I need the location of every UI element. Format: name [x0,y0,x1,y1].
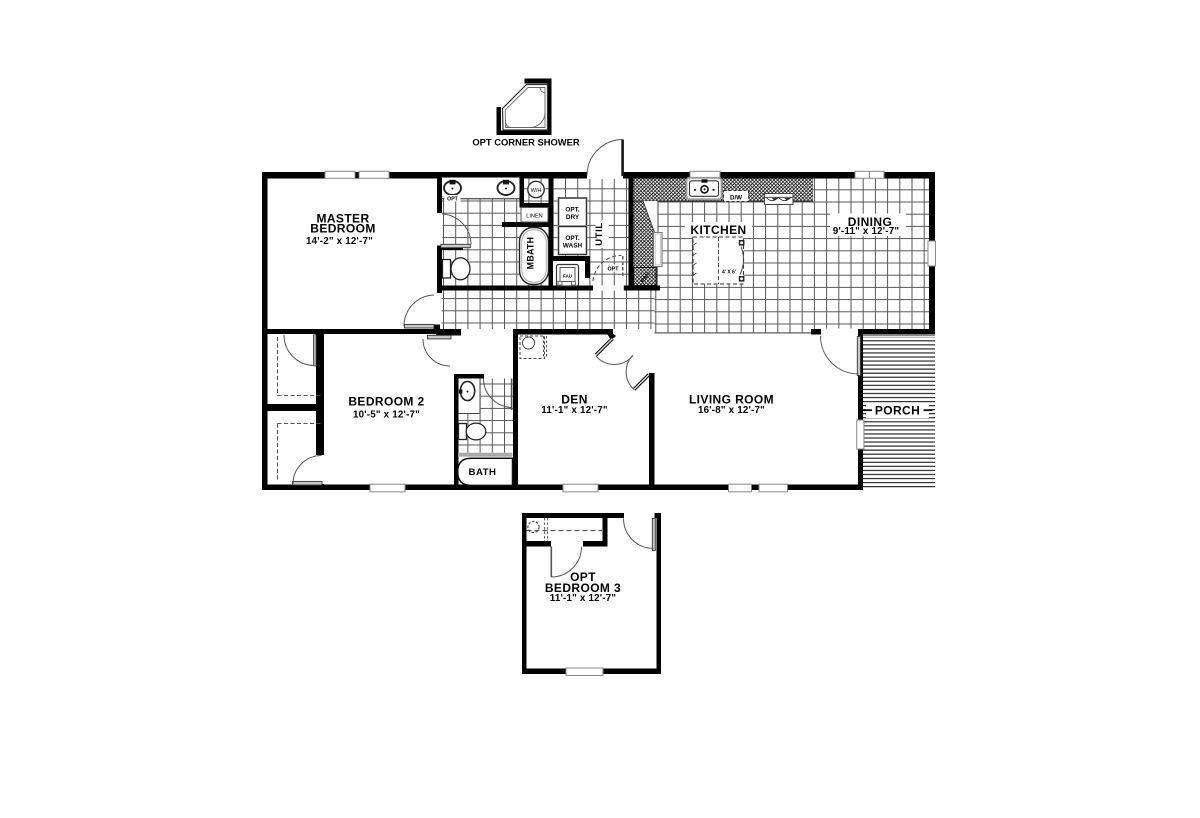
svg-text:WASH: WASH [563,243,583,250]
svg-text:BATH: BATH [469,467,497,478]
svg-text:KITCHEN: KITCHEN [690,223,746,237]
svg-text:PORCH: PORCH [875,404,920,418]
svg-text:W/H: W/H [531,188,542,194]
svg-text:OPT: OPT [607,267,619,273]
svg-text:9'-11" x 12'-7": 9'-11" x 12'-7" [833,226,900,237]
svg-text:BEDROOM: BEDROOM [310,222,375,236]
svg-text:14'-2" x 12'-7": 14'-2" x 12'-7" [306,236,373,247]
svg-text:OPT.: OPT. [565,235,579,242]
svg-text:UTIL: UTIL [594,222,605,246]
svg-text:DRY: DRY [566,214,580,221]
svg-text:OPT CORNER SHOWER: OPT CORNER SHOWER [472,136,580,147]
svg-text:OPT: OPT [447,197,458,203]
svg-text:BEDROOM 2: BEDROOM 2 [348,395,424,409]
svg-text:10'-5" x 12'-7": 10'-5" x 12'-7" [353,409,420,420]
svg-text:4' X 6': 4' X 6' [722,270,736,276]
svg-text:11'-1" x 12'-7": 11'-1" x 12'-7" [550,593,617,604]
svg-text:16'-8" x 12'-7": 16'-8" x 12'-7" [698,405,765,416]
svg-text:LINEN: LINEN [526,213,542,219]
svg-text:11'-1" x 12'-7": 11'-1" x 12'-7" [541,405,608,416]
svg-text:OPT.: OPT. [565,207,579,214]
svg-text:MBATH: MBATH [526,237,536,270]
svg-text:FAU: FAU [563,274,573,279]
svg-text:D/W: D/W [730,195,742,202]
